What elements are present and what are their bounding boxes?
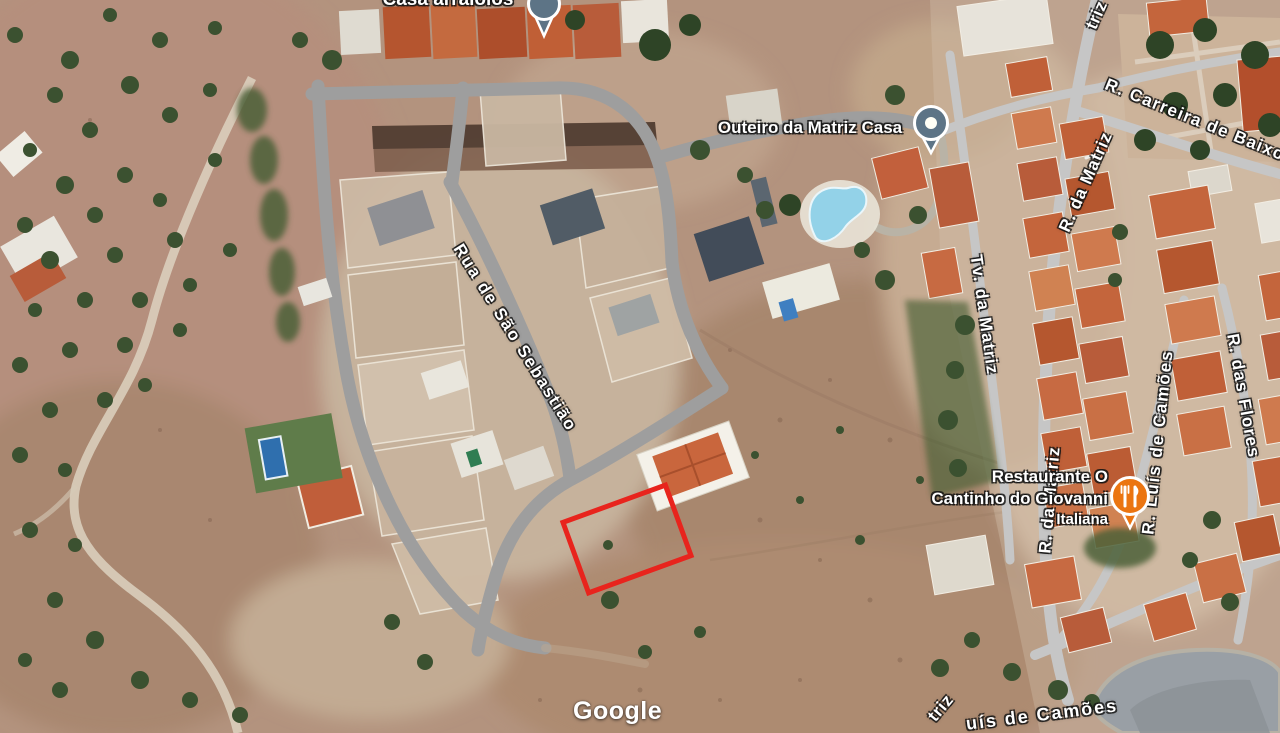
fork-knife-icon [1106,474,1154,532]
outeiro-pin[interactable] [909,103,953,162]
casa-arraiolos-pin[interactable] [524,0,564,47]
restaurant-category: Italiana [880,510,1108,529]
restaurant-name-line1: Restaurante O [880,466,1108,488]
restaurant-name-line2: Cantinho do Giovanni [880,488,1108,510]
google-watermark[interactable]: Google [573,697,662,726]
map-canvas[interactable]: Casa arraiolos Outeiro da Matriz Casa Re… [0,0,1280,733]
poi-label-outeiro-da-matriz[interactable]: Outeiro da Matriz Casa [718,118,902,138]
restaurant-pin[interactable] [1106,474,1154,537]
poi-label-casa-arraiolos[interactable]: Casa arraiolos [383,0,514,11]
map-pin-icon [524,0,564,42]
poi-label-restaurante-giovanni[interactable]: Restaurante O Cantinho do Giovanni Itali… [880,466,1108,529]
satellite-imagery [0,0,1280,733]
map-pin-dot-icon [909,103,953,157]
